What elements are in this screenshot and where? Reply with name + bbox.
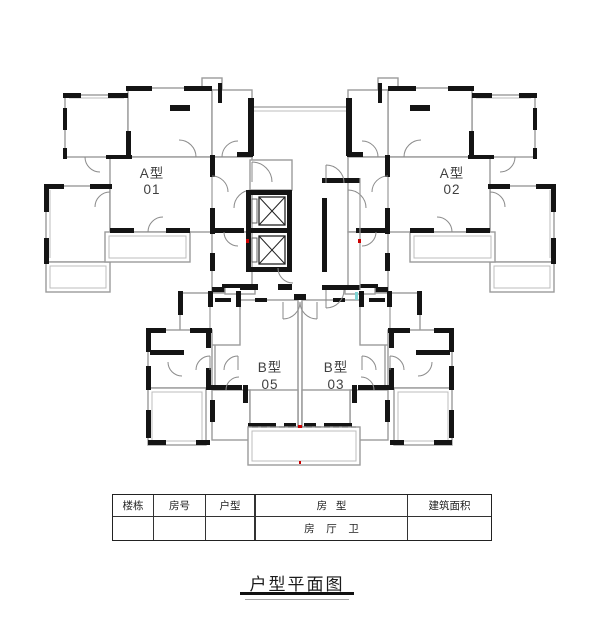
table-header-room-no: 房号 — [154, 495, 206, 517]
elevator-shaft — [246, 190, 292, 272]
red-marker — [298, 425, 302, 428]
table-cell-floor-area — [408, 517, 491, 540]
table-header-unit-type: 户型 — [206, 495, 256, 517]
red-marker — [358, 239, 361, 243]
title-underline-thin — [245, 599, 349, 600]
title-underline-thick — [240, 592, 354, 595]
unit-label-b03-type: B型 — [324, 360, 349, 375]
unit-label-b05-number: 05 — [261, 377, 278, 392]
bottom-balcony — [248, 427, 360, 465]
elevator-icon — [259, 236, 285, 264]
table-cell-building — [113, 517, 154, 540]
table-header-building: 楼栋 — [113, 495, 154, 517]
unit-label-b03-number: 03 — [327, 377, 344, 392]
table-cell-room-type-detail: 房 厅 卫 — [256, 517, 408, 540]
unit-label-a01-number: 01 — [143, 182, 160, 197]
table-cell-room-no — [154, 517, 206, 540]
unit-label-b05-type: B型 — [258, 360, 283, 375]
unit-label-a02-type: A型 — [440, 166, 465, 181]
table-cell-unit-type — [206, 517, 256, 540]
unit-b03-plan — [298, 284, 454, 445]
table-header-floor-area: 建筑面积 — [408, 495, 491, 517]
red-marker — [299, 461, 301, 464]
teal-marker — [355, 292, 358, 300]
unit-label-a02-number: 02 — [443, 182, 460, 197]
table-header-room-type: 房 型 — [256, 495, 408, 517]
unit-label-a01-type: A型 — [140, 166, 165, 181]
red-marker — [246, 239, 249, 243]
unit-schedule-table: 楼栋 房号 户型 房 型 建筑面积 房 厅 卫 — [112, 494, 492, 541]
elevator-icon — [259, 197, 285, 225]
